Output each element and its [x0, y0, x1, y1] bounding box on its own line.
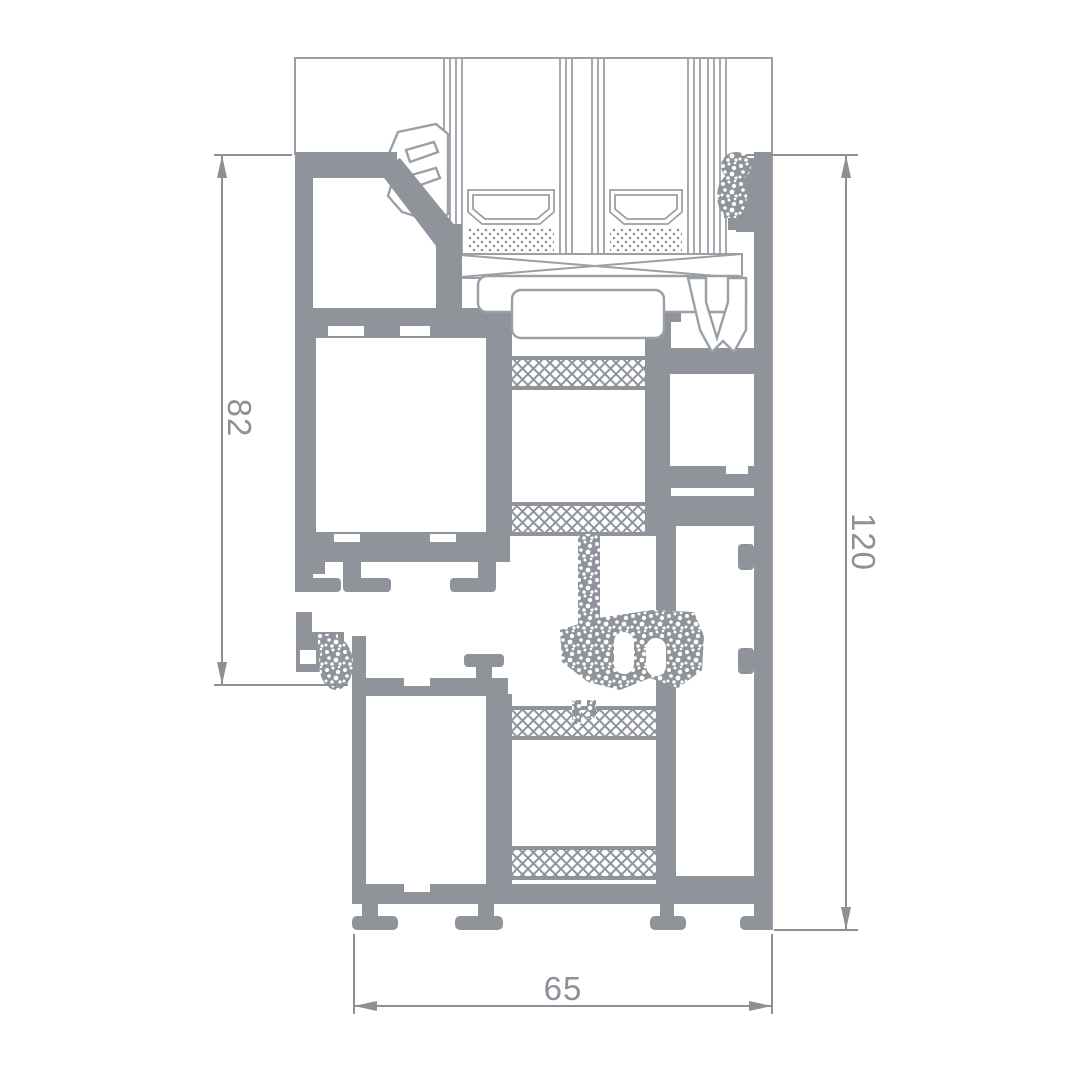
drawing-background	[0, 0, 1080, 1080]
dim-label-120: 120	[845, 513, 882, 571]
dim-label-65: 65	[544, 970, 583, 1007]
thermal-break-lower-1	[512, 706, 656, 740]
profile-section-drawing: 82 120 65	[0, 0, 1080, 1080]
desiccant-right	[610, 228, 682, 254]
thermal-break-upper-1	[512, 356, 645, 390]
thermal-break-upper-2	[512, 502, 645, 536]
technical-drawing-canvas: 82 120 65	[0, 0, 1080, 1080]
desiccant-left	[468, 228, 554, 254]
setting-block	[448, 254, 742, 278]
dim-label-82: 82	[221, 399, 258, 438]
thermal-break-lower-2	[512, 846, 656, 880]
